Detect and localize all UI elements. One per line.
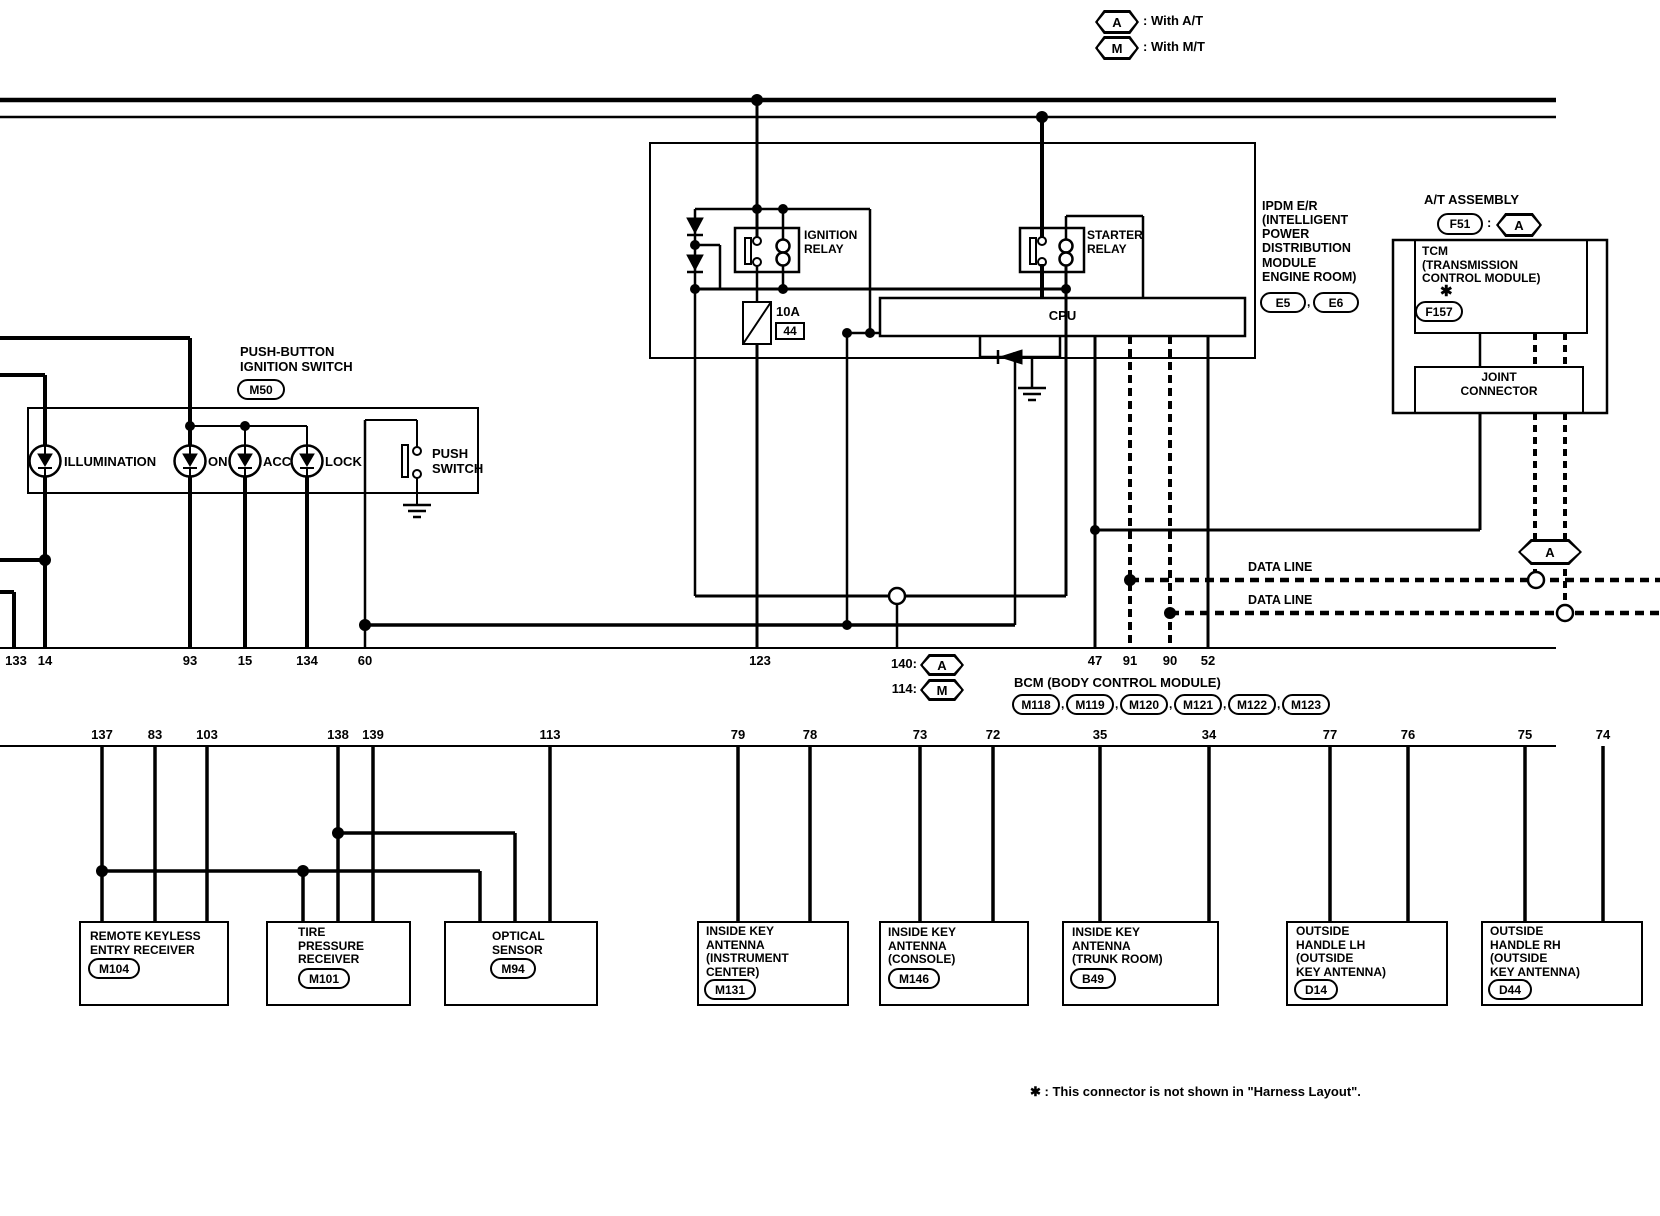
bottom-component-wires (102, 746, 1603, 922)
tcm-star: ✱ (1440, 284, 1453, 301)
on-led-icon (175, 446, 206, 477)
pin-91: 91 (1123, 653, 1137, 668)
pin-140-at-hexagon: A (920, 654, 964, 676)
illumination-label: ILLUMINATION (64, 455, 156, 470)
connector-m118: M118 (1012, 694, 1060, 715)
connector-m101: M101 (298, 968, 350, 989)
component-inside-antenna-console-label: INSIDE KEY ANTENNA (CONSOLE) (888, 926, 956, 967)
pin-75: 75 (1518, 727, 1532, 742)
starter-relay-label: STARTER RELAY (1087, 229, 1143, 256)
acc-label: ACC (263, 455, 291, 470)
legend-at-label: : With A/T (1143, 14, 1203, 29)
pin-133: 133 (5, 653, 27, 668)
comma: , (1061, 698, 1064, 712)
bcm-title: BCM (BODY CONTROL MODULE) (1014, 676, 1221, 691)
pin-77: 77 (1323, 727, 1337, 742)
pin-123: 123 (749, 653, 771, 668)
comma: , (1115, 698, 1118, 712)
bcm-output-wires (365, 336, 1480, 648)
component-outside-handle-rh-label: OUTSIDE HANDLE RH (OUTSIDE KEY ANTENNA) (1490, 925, 1580, 979)
data-line-label-2: DATA LINE (1248, 593, 1312, 607)
connector-d14: D14 (1294, 979, 1338, 1000)
component-outside-handle-lh-label: OUTSIDE HANDLE LH (OUTSIDE KEY ANTENNA) (1296, 925, 1386, 979)
ignition-relay-symbol (735, 228, 799, 272)
connector-b49: B49 (1070, 968, 1116, 989)
diode-down-1 (687, 218, 703, 235)
comma: , (1277, 698, 1280, 712)
pin-103: 103 (196, 727, 218, 742)
data-line-label-1: DATA LINE (1248, 560, 1312, 574)
component-inside-antenna-instrument-label: INSIDE KEY ANTENNA (INSTRUMENT CENTER) (706, 925, 789, 979)
pin-35: 35 (1093, 727, 1107, 742)
lock-label: LOCK (325, 455, 362, 470)
pin-79: 79 (731, 727, 745, 742)
pin-138: 138 (327, 727, 349, 742)
pin-34: 34 (1202, 727, 1216, 742)
component-optical-sensor-label: OPTICAL SENSOR (492, 930, 545, 957)
pin-139: 139 (362, 727, 384, 742)
relay-feed-wires (757, 100, 1042, 239)
legend-mt-label: : With M/T (1143, 40, 1205, 55)
colon: : (1487, 216, 1491, 231)
connector-m146: M146 (888, 968, 940, 989)
connector-e5: E5 (1260, 292, 1306, 313)
cpu-output-wiring (980, 336, 1060, 625)
pin-137: 137 (91, 727, 113, 742)
illumination-led-icon (30, 446, 61, 477)
push-switch-symbol (402, 445, 421, 478)
switch-ground-symbol (403, 505, 431, 517)
footnote: ✱ : This connector is not shown in "Harn… (1030, 1085, 1361, 1100)
connector-m120: M120 (1120, 694, 1168, 715)
connector-m50: M50 (237, 379, 285, 400)
component-inside-antenna-trunk-label: INSIDE KEY ANTENNA (TRUNK ROOM) (1072, 926, 1163, 967)
pin-114-label: 114: (875, 682, 917, 697)
tcm-label: TCM (TRANSMISSION CONTROL MODULE) (1422, 245, 1540, 286)
pin-15: 15 (238, 653, 252, 668)
pin-60: 60 (358, 653, 372, 668)
connector-e6: E6 (1313, 292, 1359, 313)
ignition-relay-label: IGNITION RELAY (804, 229, 857, 256)
pin-14: 14 (38, 653, 52, 668)
comma: , (1223, 698, 1226, 712)
pin-83: 83 (148, 727, 162, 742)
connector-m104: M104 (88, 958, 140, 979)
connector-m119: M119 (1066, 694, 1114, 715)
at-assembly-title: A/T ASSEMBLY (1424, 193, 1519, 208)
fuse-number-box: 44 (775, 322, 805, 340)
connector-f51: F51 (1437, 213, 1483, 235)
connector-m131: M131 (704, 979, 756, 1000)
connector-d44: D44 (1488, 979, 1532, 1000)
comma: , (1307, 296, 1310, 310)
connector-m123: M123 (1282, 694, 1330, 715)
connector-f157: F157 (1415, 301, 1463, 322)
legend-mt-hexagon: M (1095, 36, 1139, 60)
f51-at-hexagon: A (1496, 213, 1542, 237)
power-bus-lines (0, 100, 1556, 117)
legend-at-hexagon: A (1095, 10, 1139, 34)
wiring-svg (0, 0, 1660, 1216)
ignition-switch-title: PUSH-BUTTON IGNITION SWITCH (240, 345, 353, 374)
pin-73: 73 (913, 727, 927, 742)
connector-m121: M121 (1174, 694, 1222, 715)
acc-led-icon (230, 446, 261, 477)
pin-114-mt-hexagon: M (920, 679, 964, 701)
ipdm-ground-symbol (1018, 388, 1046, 400)
joint-connector-label: JOINT CONNECTOR (1415, 371, 1583, 398)
wiring-diagram-page: A : With A/T M : With M/T IPDM E/R (INTE… (0, 0, 1660, 1216)
pin-74: 74 (1596, 727, 1610, 742)
ipdm-label: IPDM E/R (INTELLIGENT POWER DISTRIBUTION… (1262, 199, 1356, 284)
component-remote-keyless-label: REMOTE KEYLESS ENTRY RECEIVER (90, 930, 201, 957)
pin-90: 90 (1163, 653, 1177, 668)
pin-93: 93 (183, 653, 197, 668)
starter-relay-symbol (1020, 228, 1084, 272)
diode-down-2 (687, 255, 703, 272)
push-switch-label: PUSH SWITCH (432, 447, 483, 476)
junction-dots (39, 94, 1176, 877)
pin-78: 78 (803, 727, 817, 742)
cpu-label: CPU (880, 309, 1245, 324)
component-tire-pressure-label: TIRE PRESSURE RECEIVER (298, 926, 364, 967)
at-variant-hexagon: A (1518, 539, 1582, 565)
pin-76: 76 (1401, 727, 1415, 742)
pin-52: 52 (1201, 653, 1215, 668)
pin-134: 134 (296, 653, 318, 668)
pin-47: 47 (1088, 653, 1102, 668)
pin-140-label: 140: (875, 657, 917, 672)
pin-72: 72 (986, 727, 1000, 742)
pin-113: 113 (540, 727, 561, 742)
comma: , (1169, 698, 1172, 712)
ipdm-box (650, 143, 1255, 358)
connector-m122: M122 (1228, 694, 1276, 715)
connector-m94: M94 (490, 958, 536, 979)
on-label: ON (208, 455, 228, 470)
lock-led-icon (292, 446, 323, 477)
fuse-rating-label: 10A (776, 305, 800, 320)
